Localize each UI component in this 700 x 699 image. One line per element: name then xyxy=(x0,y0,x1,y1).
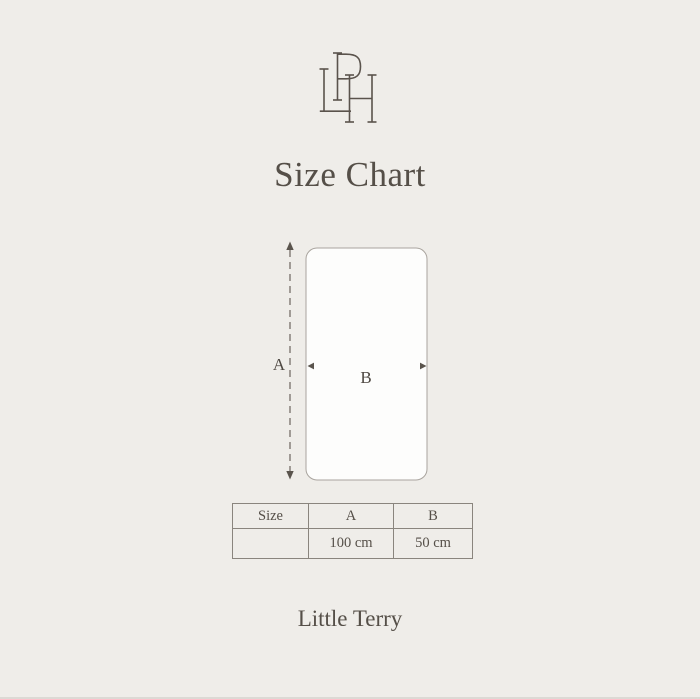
header-cell-a: A xyxy=(309,504,394,529)
width-dimension-label: B xyxy=(355,368,377,388)
product-outline-rect xyxy=(306,248,427,480)
size-table-value-row: 100 cm 50 cm xyxy=(233,529,473,559)
header-cell-b: B xyxy=(394,504,473,529)
value-cell-size xyxy=(233,529,309,559)
arrow-up-icon xyxy=(286,242,293,251)
size-table-header-row: Size A B xyxy=(233,504,473,529)
height-dimension-label: A xyxy=(268,355,290,375)
lph-monogram-logo xyxy=(313,46,388,128)
product-name: Little Terry xyxy=(0,606,700,632)
value-cell-a: 100 cm xyxy=(309,529,394,559)
page-title: Size Chart xyxy=(0,155,700,195)
value-cell-b: 50 cm xyxy=(394,529,473,559)
header-cell-size: Size xyxy=(233,504,309,529)
product-dimension-diagram xyxy=(270,235,440,490)
arrow-down-icon xyxy=(286,471,293,480)
size-table: Size A B 100 cm 50 cm xyxy=(232,503,473,559)
